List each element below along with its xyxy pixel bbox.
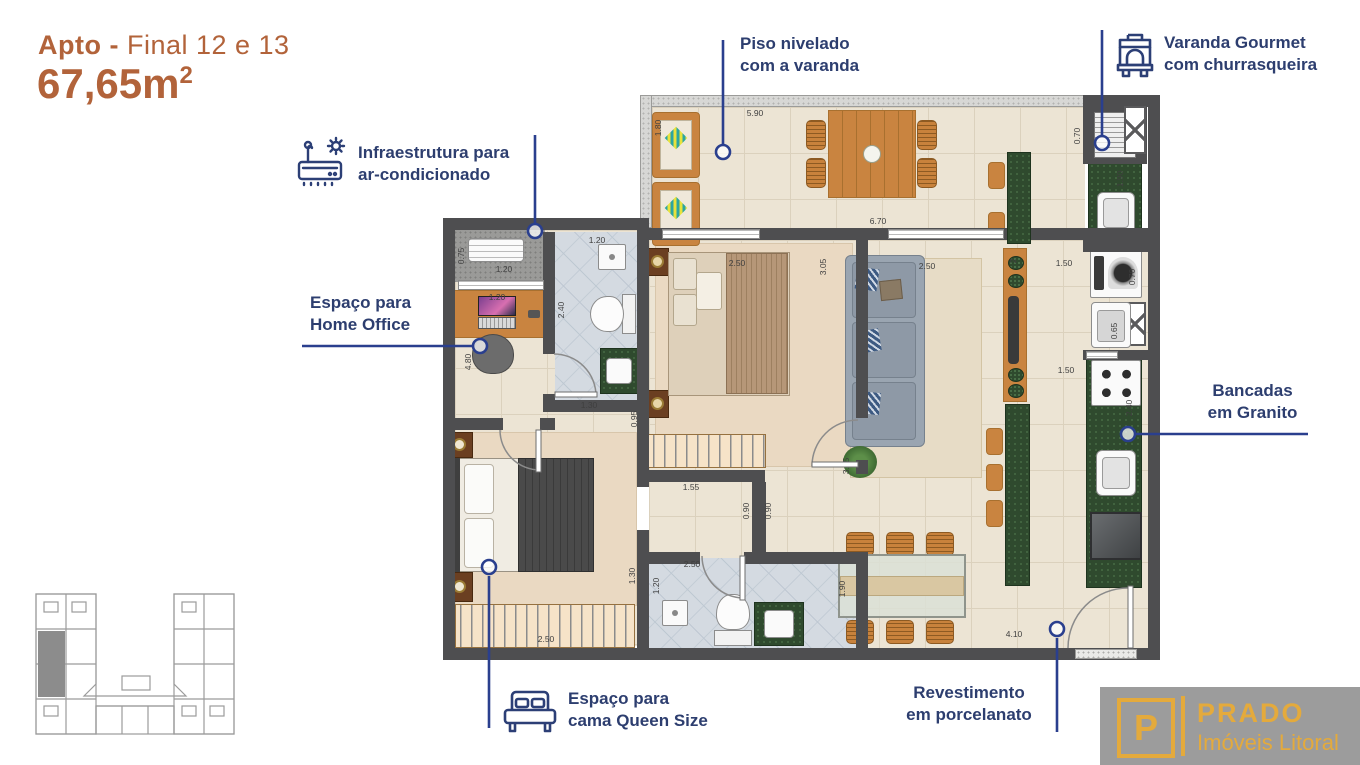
dimension-label: 3.05 xyxy=(818,259,828,276)
logo-monogram: P xyxy=(1117,698,1175,758)
dimension-label: 1.50 xyxy=(1056,258,1073,268)
dimension-label: 1.50 xyxy=(1058,365,1075,375)
dimension-label: 1.90 xyxy=(1115,171,1125,188)
dimension-label: 2.50 xyxy=(919,261,936,271)
dimension-label: 2 xyxy=(1008,259,1018,264)
logo-tagline: Imóveis Litoral xyxy=(1197,730,1339,756)
dimension-label: 1.55 xyxy=(683,482,700,492)
logo-brand-name: PRADO xyxy=(1197,698,1305,729)
dimension-label: 1.90 xyxy=(837,581,847,598)
brand-logo: P PRADO Imóveis Litoral xyxy=(1100,687,1360,765)
dimension-label: 0.70 xyxy=(1072,128,1082,145)
dimension-label: 1.20 xyxy=(496,264,513,274)
dimension-label: 6.70 xyxy=(870,216,887,226)
floorplan-page: Apto - Final 12 e 13 67,65m2 xyxy=(0,0,1360,765)
dimension-label: 1.80 xyxy=(653,120,663,137)
dimension-layer: 5.901.806.700.701.902.503.052.501.500.70… xyxy=(0,0,1360,765)
dimension-label: 2.40 xyxy=(1124,400,1134,417)
dimension-label: 0.75 xyxy=(456,248,466,265)
dimension-label: 1.20 xyxy=(651,578,661,595)
dimension-label: 2.50 xyxy=(538,634,555,644)
dimension-label: 1.30 xyxy=(581,400,598,410)
dimension-label: 4.10 xyxy=(1006,629,1023,639)
dimension-label: 2.40 xyxy=(556,302,566,319)
dimension-label: 5.90 xyxy=(747,108,764,118)
dimension-label: 0.90 xyxy=(763,503,773,520)
double-bed-icon xyxy=(503,690,557,734)
dimension-label: 2.50 xyxy=(684,559,701,569)
bbq-grill-icon xyxy=(1112,32,1158,78)
dimension-label: 0.70 xyxy=(1127,269,1137,286)
logo-divider xyxy=(1181,696,1185,756)
dimension-label: 1.20 xyxy=(489,292,506,302)
dimension-label: 1.20 xyxy=(589,235,606,245)
air-conditioner-icon xyxy=(296,136,350,188)
dimension-label: 1.30 xyxy=(627,568,637,585)
dimension-label: 0.90 xyxy=(741,503,751,520)
dimension-label: 0.65 xyxy=(1109,323,1119,340)
dimension-label: 3.15 xyxy=(841,458,851,475)
dimension-label: 2.50 xyxy=(729,258,746,268)
dimension-label: 0.95 xyxy=(629,411,639,428)
dimension-label: 4.80 xyxy=(463,354,473,371)
